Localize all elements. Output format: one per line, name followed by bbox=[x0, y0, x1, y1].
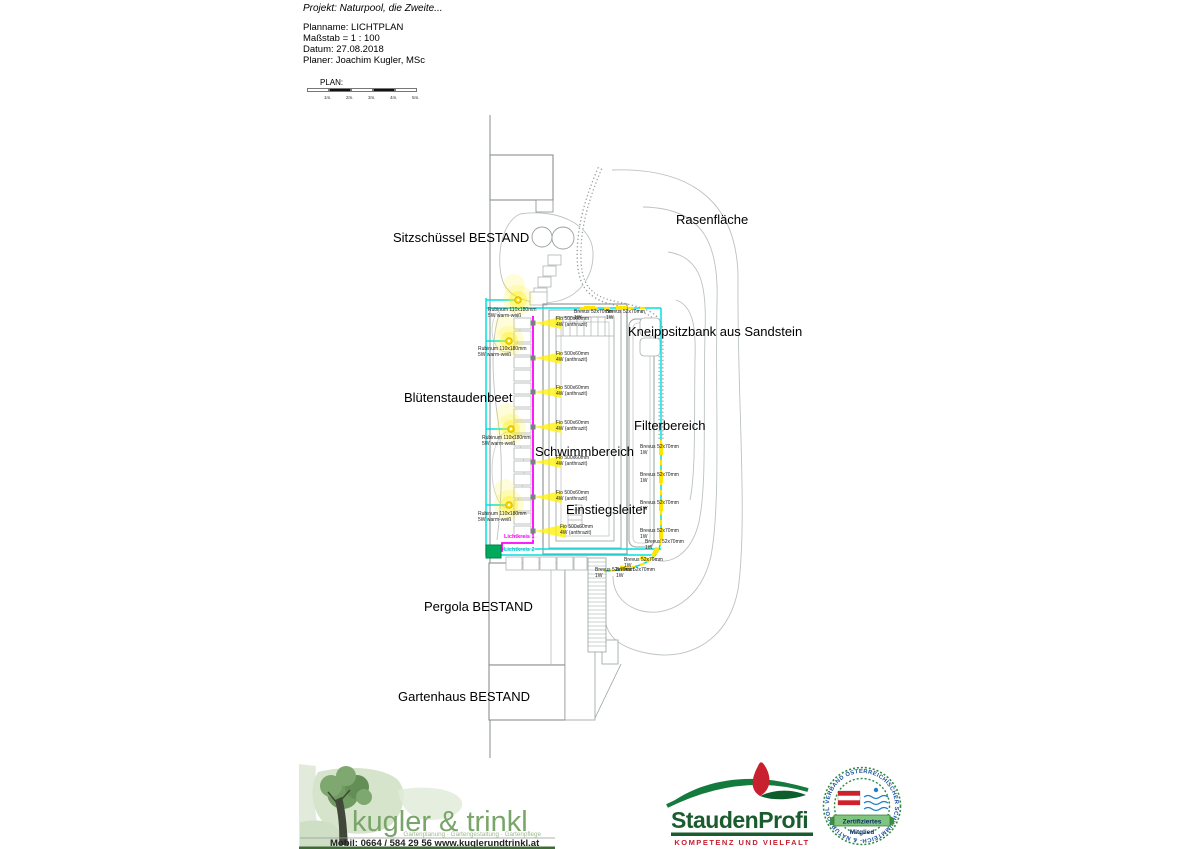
fio-light-label: Fio 500x60mm4W (anthrazit) bbox=[556, 421, 589, 432]
area-label-sitzschuessel: Sitzschüssel BESTAND bbox=[393, 230, 529, 245]
bud-icon bbox=[753, 762, 770, 796]
circuit2-label: Lichtkreis 2 bbox=[504, 547, 535, 553]
area-label-bluetenstaudenbeet: Blütenstaudenbeet bbox=[404, 390, 512, 405]
rubinum-light-label: Rubinum 110x180mm5W warm-weiß bbox=[478, 347, 527, 358]
area-label-einstiegsleiter: Einstiegsleiter bbox=[566, 502, 647, 517]
plan-sheet: Projekt: Naturpool, die Zweite... Planna… bbox=[0, 0, 1200, 849]
austria-flag-icon bbox=[838, 791, 860, 805]
fio-light-label: Fio 500x60mm4W (anthrazit) bbox=[556, 491, 589, 502]
brevus-light-label: Brevus 52x70mm1W bbox=[645, 540, 684, 551]
brevus-light-label: Brevus 52x70mm1W bbox=[606, 310, 645, 321]
badge-line1: Zertifiziertes bbox=[843, 819, 882, 826]
fio-light-label: Fio 500x60mm4W (anthrazit) bbox=[556, 386, 589, 397]
svg-text:VERBAND ÖSTERREICHISCHER SCHWI: VERBAND ÖSTERREICHISCHER SCHWIMMTEICH- &… bbox=[0, 0, 899, 843]
brevus-light-label: Brevus 52x70mm1W bbox=[640, 473, 679, 484]
fio-light-label: Fio 500x60mm4W (anthrazit) bbox=[560, 525, 593, 536]
brevus-light-label: Brevus 52x70mm1W bbox=[640, 445, 679, 456]
brevus-light-label: Brevus 52x70mm1W bbox=[640, 501, 679, 512]
site-plan-drawing: kugler & trinkl Gartenplanung · Gartenge… bbox=[0, 0, 1200, 849]
area-label-rasenflaeche: Rasenfläche bbox=[676, 212, 748, 227]
building-pergola bbox=[489, 563, 565, 665]
fio-light-label: Fio 500x60mm4W (anthrazit) bbox=[556, 456, 589, 467]
badge-ring-text: VERBAND ÖSTERREICHISCHER SCHWIMMTEICH- &… bbox=[0, 0, 899, 843]
certification-badge: VERBAND ÖSTERREICHISCHER SCHWIMMTEICH- &… bbox=[0, 0, 902, 846]
seat-bowls bbox=[530, 227, 574, 305]
area-label-kneippsitzbank: Kneippsitzbank aus Sandstein bbox=[628, 324, 802, 339]
rubinum-light-label: Rubinum 110x180mm5W warm-weiß bbox=[478, 512, 527, 523]
circuit1-label: Lichtkreis 1 bbox=[504, 534, 535, 540]
fio-light-label: Fio 500x60mm4W (anthrazit) bbox=[556, 352, 589, 363]
staudenprofi-logo: StaudenProfi KOMPETENZ UND VIELFALT bbox=[667, 762, 813, 847]
area-label-pergola: Pergola BESTAND bbox=[424, 599, 533, 614]
kugler-trinkl-logo: kugler & trinkl Gartenplanung · Gartenge… bbox=[299, 764, 555, 849]
stauden-tagline: KOMPETENZ UND VIELFALT bbox=[674, 838, 809, 847]
stauden-name: StaudenProfi bbox=[671, 807, 808, 833]
badge-line2: Mitglied bbox=[850, 829, 875, 836]
kugler-tagline: Gartenplanung · Gartengestaltung · Garte… bbox=[403, 831, 541, 838]
building-top bbox=[490, 155, 553, 200]
area-label-gartenhaus: Gartenhaus BESTAND bbox=[398, 689, 530, 704]
rubinum-light-label: Rubinum 110x180mm5W warm-weiß bbox=[488, 308, 537, 319]
brevus-light-label: Brevus 52x70mm1W bbox=[616, 568, 655, 579]
rubinum-light-label: Rubinum 110x180mm5W warm-weiß bbox=[482, 436, 531, 447]
area-label-filterbereich: Filterbereich bbox=[634, 418, 706, 433]
power-supply-box bbox=[486, 545, 501, 558]
